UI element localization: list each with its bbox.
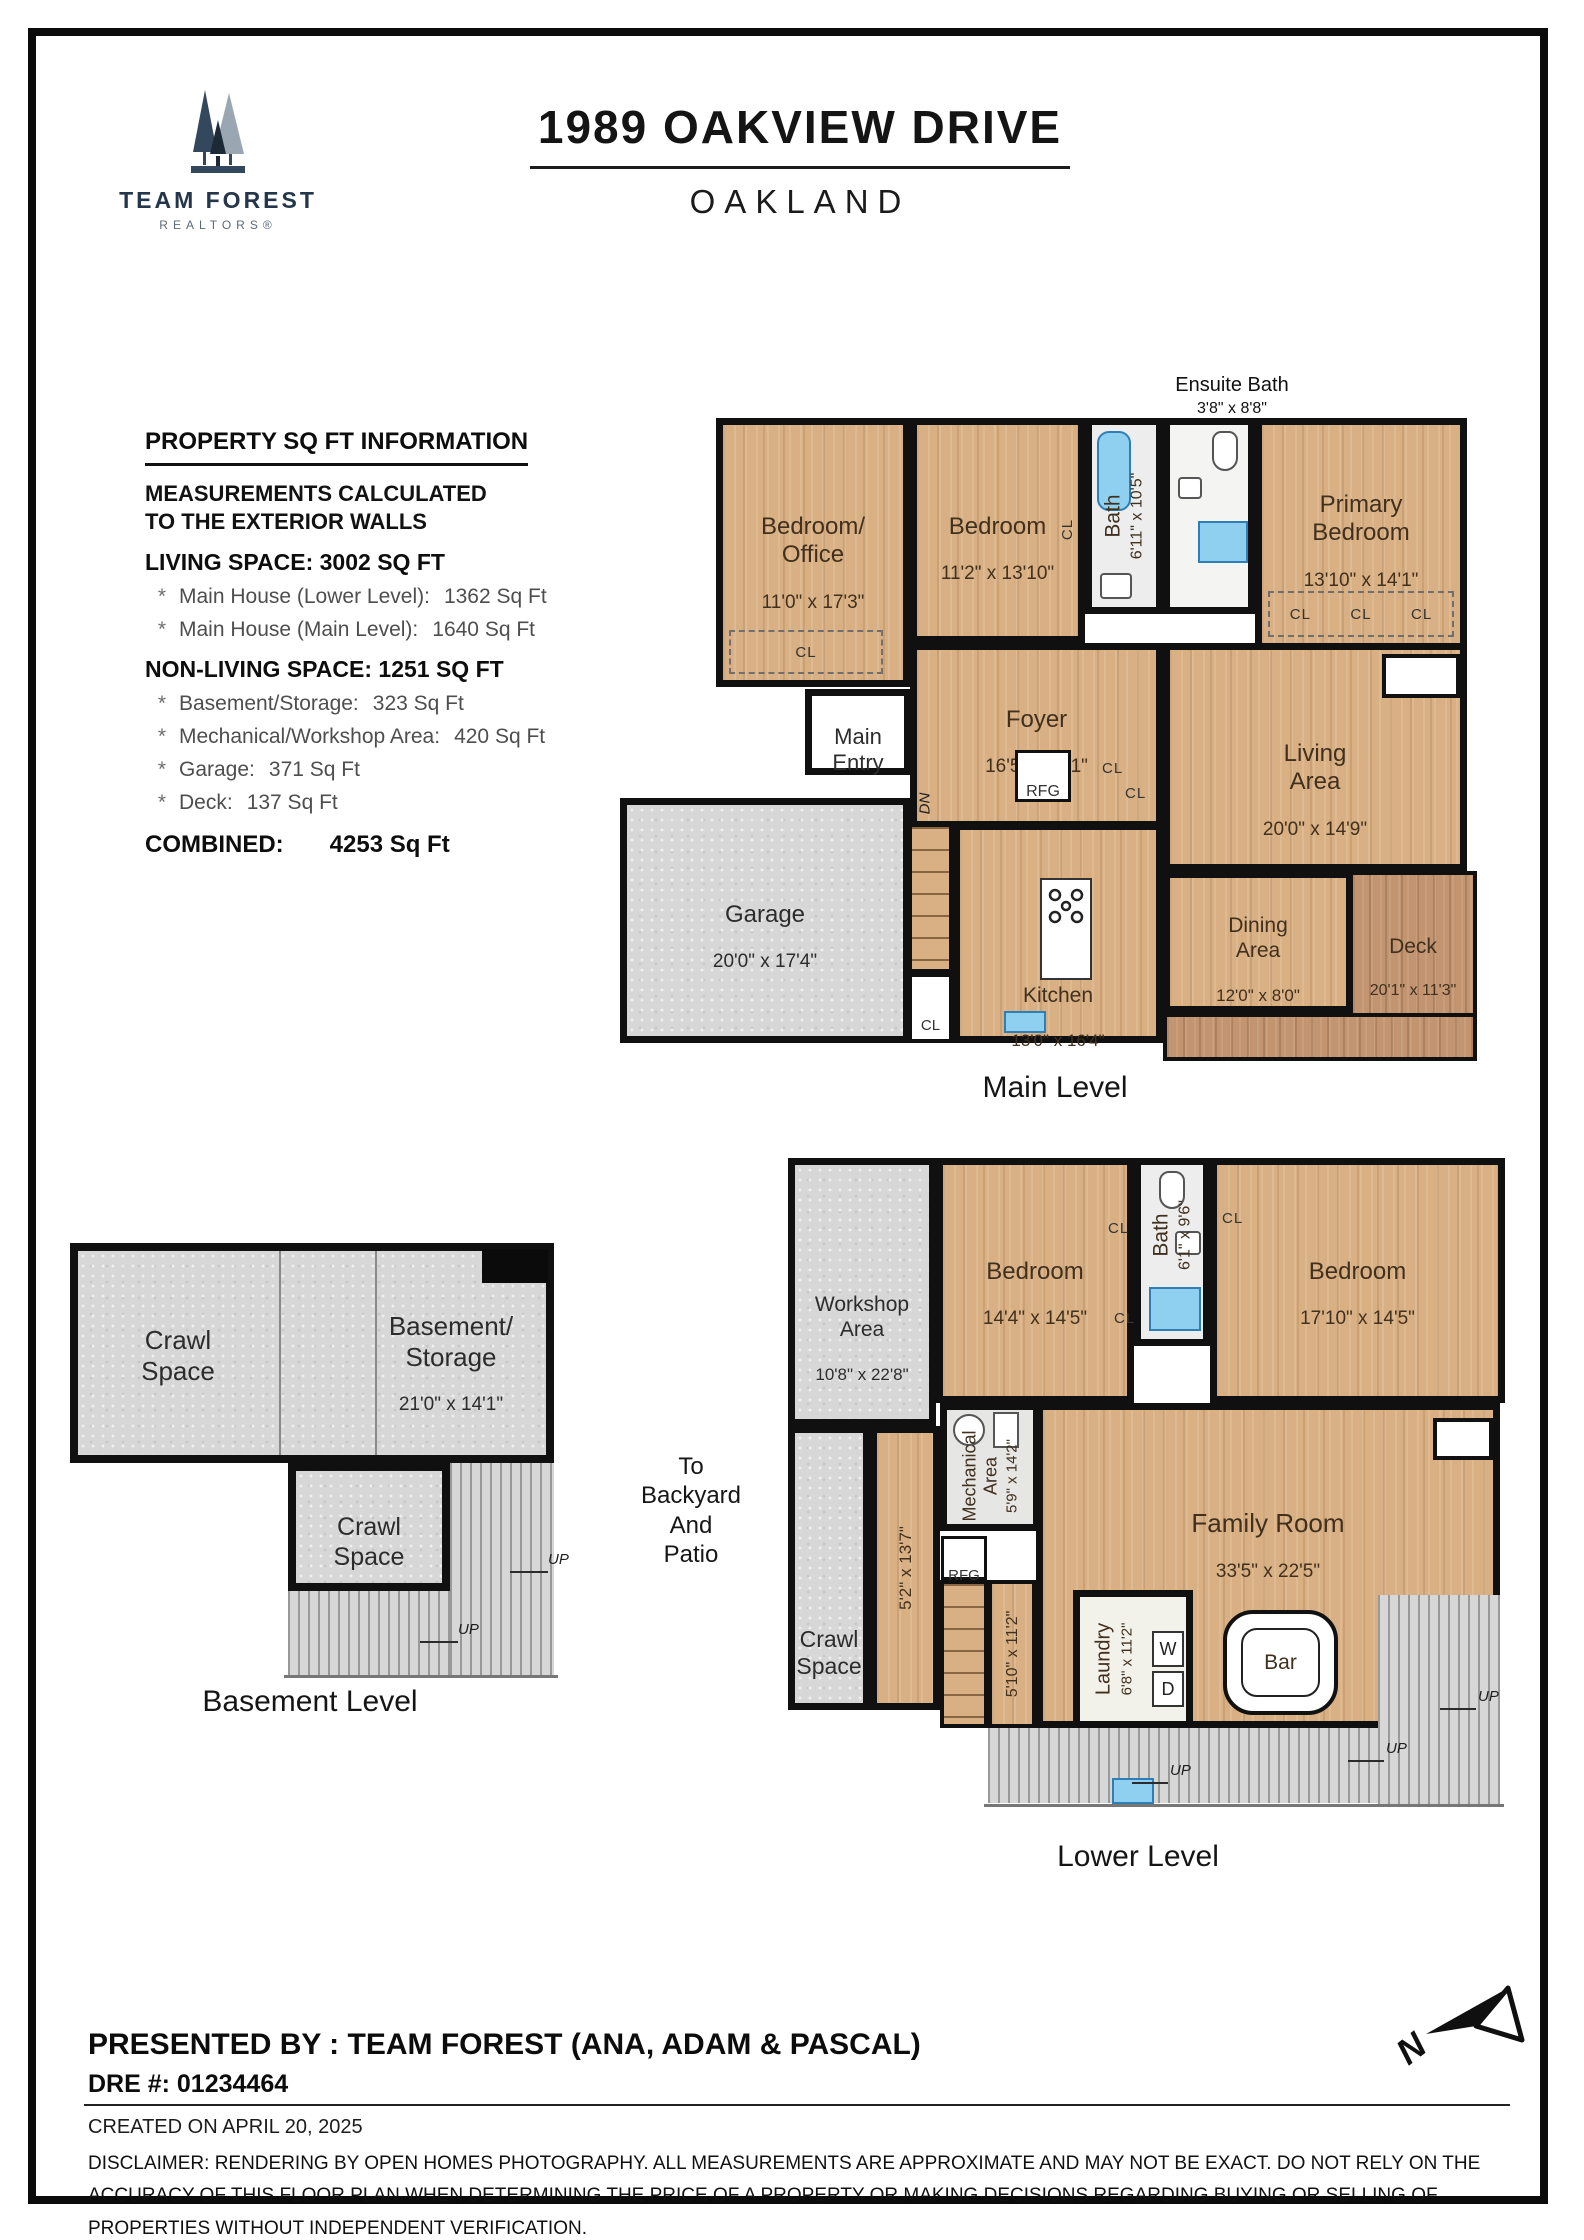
item-value: 371 Sq Ft [269,758,360,782]
stairs-up [940,1580,988,1728]
room-dims: 11'2" x 13'10" [917,563,1078,585]
closet-label: CL [1411,606,1432,623]
footer-divider [84,2104,1510,2106]
closet-label: CL [1125,785,1146,802]
room-label: Living Area 20'0" x 14'9" [1170,722,1460,859]
room-name: Bath [1150,1200,1175,1270]
room-dims: 14'4" x 14'5" [943,1308,1127,1330]
closet-label: CL [1222,1210,1243,1227]
appliance-label: RFG [1018,765,1068,819]
fireplace-icon [1382,654,1460,698]
dryer-label: D [1162,1679,1175,1700]
stair-dims: 5'10" x 11'2" [1004,1611,1022,1698]
room-name: Kitchen [960,984,1156,1009]
room-name: Workshop Area [795,1293,929,1343]
room-name: Mechanical Area [959,1431,1001,1522]
washer-label: W [1160,1639,1177,1660]
up-tick [510,1571,548,1573]
closet-label: CL [1290,606,1311,623]
closet-label: CL [1350,606,1371,623]
room-mechanical: Mechanical Area 5'9" x 14'2" [940,1403,1040,1531]
room-label: Kitchen 13'0" x 16'4" [960,966,1156,1069]
up-label: UP [1386,1740,1407,1757]
room-primary-bedroom: Primary Bedroom 13'10" x 14'1" CL CL CL [1255,418,1467,650]
room-label: Mechanical Area 5'9" x 14'2" [959,1431,1020,1522]
room-dims: 21'0" x 14'1" [366,1394,536,1416]
backyard-note: To Backyard And Patio [616,1452,766,1569]
item-value: 1640 Sq Ft [432,618,535,642]
ensuite-bath-annotation: Ensuite Bath 3'8" x 8'8" [1166,374,1298,418]
info-heading: PROPERTY SQ FT INFORMATION [145,428,528,466]
room-name: Ensuite Bath [1166,374,1298,397]
pine-trees-icon [183,88,253,176]
combined-value: 4253 Sq Ft [330,831,450,859]
room-laundry: Laundry 6'8" x 11'2" W D [1073,1590,1193,1728]
north-arrow-icon: N [1390,1982,1540,2087]
room-dims: 10'8" x 22'8" [795,1365,929,1385]
room-dims: 6'8" x 11'2" [1118,1623,1135,1696]
room-dims: 20'0" x 17'4" [627,951,903,973]
fireplace-icon [1433,1418,1493,1460]
svg-text:N: N [1390,2023,1435,2072]
info-note: MEASUREMENTS CALCULATED TO THE EXTERIOR … [145,480,645,535]
room-name: Main Entry [812,724,904,776]
main-level-caption: Main Level [605,1071,1505,1105]
bullet: * [145,791,179,815]
dre-number: DRE #: 01234464 [88,2070,288,2099]
list-item: * Garage: 371 Sq Ft [145,758,645,782]
living-space-heading: LIVING SPACE: 3002 SQ FT [145,549,645,576]
room-dims: 17'10" x 14'5" [1217,1308,1498,1330]
room-label: Dining Area 12'0" x 8'0" [1170,896,1346,1024]
corridor-label: 5'2" x 13'7" [894,1526,916,1610]
toilet-icon [1212,431,1238,471]
kitchen-island [1040,878,1092,980]
item-value: 323 Sq Ft [373,692,464,716]
item-label: Basement/Storage: [179,692,359,716]
room-bedroom-b: Bedroom 17'10" x 14'5" [1210,1158,1505,1403]
closet: CL [729,630,883,674]
stove-icon [1044,884,1088,928]
partition-line [279,1251,281,1455]
combined-label: COMBINED: [145,831,284,859]
up-label: UP [458,1621,479,1638]
item-label: Garage: [179,758,255,782]
page-subtitle: OAKLAND [420,183,1180,221]
room-name: Basement/ Storage [366,1311,536,1372]
deck-upper: Deck 20'1" x 11'3" [1349,871,1477,1017]
room-label: Bath 6'1" x 9'6" [1150,1200,1195,1270]
room-living-area: Living Area 20'0" x 14'9" [1163,643,1467,871]
room-name: Crawl Space [88,1325,268,1386]
washer-icon: W [1152,1631,1184,1667]
room-label: Workshop Area 10'8" x 22'8" [795,1275,929,1403]
corridor: 5'2" x 13'7" [870,1426,940,1710]
main-entry-porch: Main Entry [805,689,911,775]
bar-label: Bar [1264,1651,1297,1675]
bullet: * [145,618,179,642]
bullet: * [145,758,179,782]
stair-landing: 5'10" x 11'2" [988,1580,1036,1728]
room-name: Bedroom [1217,1258,1498,1286]
stair-label: 5'10" x 11'2" [1002,1611,1022,1698]
up-tick [420,1641,458,1643]
room-bath-lower: Bath 6'1" x 9'6" [1134,1158,1210,1346]
room-label: Bath 6'11" x 10'5" [1102,473,1147,560]
room-dims: 20'1" x 11'3" [1353,982,1473,1000]
bullet: * [145,692,179,716]
item-label: Mechanical/Workshop Area: [179,725,440,749]
closet-label: CL [1059,519,1076,540]
closet-label-wrap: CL [912,999,949,1035]
room-name: Crawl Space [795,1626,863,1680]
refrigerator-closet: RFG [1015,750,1071,802]
up-label: UP [1170,1762,1191,1779]
exterior-stairs [450,1463,554,1675]
room-name: Foyer [917,706,1156,734]
rfg-label: RFG [1018,783,1068,801]
room-bedroom-a: Bedroom 14'4" x 14'5" [936,1158,1134,1403]
nonliving-space-heading: NON-LIVING SPACE: 1251 SQ FT [145,656,645,683]
list-item: * Main House (Lower Level): 1362 Sq Ft [145,585,645,609]
closet-label: CL [921,1017,940,1034]
room-label: Bedroom 17'10" x 14'5" [1217,1240,1498,1348]
room-name: Laundry [1093,1623,1117,1696]
disclaimer-text: DISCLAIMER: RENDERING BY OPEN HOMES PHOT… [88,2148,1514,2240]
sink-icon [1178,477,1202,499]
room-label: Family Room 33'5" x 22'5" [1043,1490,1493,1601]
basement-crawl-box: Crawl Space [288,1463,450,1591]
room-dining-area: Dining Area 12'0" x 8'0" [1163,871,1353,1013]
dryer-icon: D [1152,1671,1184,1707]
room-name: Deck [1353,935,1473,960]
room-ensuite-bath [1163,418,1255,614]
combined-total: COMBINED: 4253 Sq Ft [145,831,645,859]
room-label: Deck 20'1" x 11'3" [1353,917,1473,1018]
presented-by: PRESENTED BY : TEAM FOREST (ANA, ADAM & … [88,2028,921,2062]
list-item: * Deck: 137 Sq Ft [145,791,645,815]
sink-icon [1100,573,1132,599]
steps-baseline [984,1804,1504,1807]
room-dims: 11'0" x 17'3" [723,592,903,614]
wall-notch [482,1249,548,1283]
room-dims: 6'11" x 10'5" [1128,473,1146,560]
room-name: Bedroom [917,513,1078,541]
bullet: * [145,585,179,609]
page-title: 1989 OAKVIEW DRIVE [420,100,1180,154]
room-dims: 33'5" x 22'5" [1043,1561,1493,1583]
exterior-steps [288,1591,450,1675]
room-name: Living Area [1170,740,1460,797]
room-label: Laundry 6'8" x 11'2" [1093,1623,1136,1696]
list-item: * Main House (Main Level): 1640 Sq Ft [145,618,645,642]
room-name: Bedroom/ Office [723,513,903,570]
closet-label: CL [1108,1220,1129,1237]
under-stair-closet: CL [908,973,953,1043]
closet-row: CL CL CL [1268,591,1454,637]
room-label: Bedroom 11'2" x 13'10" [917,495,1078,603]
room-label: Garage 20'0" x 17'4" [627,883,903,991]
item-value: 1362 Sq Ft [444,585,547,609]
room-dims: 5'9" x 14'2" [1004,1431,1021,1522]
closet-label: CL [1102,760,1123,777]
item-label: Deck: [179,791,233,815]
shower-icon [1149,1287,1201,1331]
up-label: UP [1478,1688,1499,1705]
steps-baseline [284,1675,558,1678]
room-label: Crawl Space [296,1495,442,1590]
basement-caption: Basement Level [110,1685,510,1719]
created-date: CREATED ON APRIL 20, 2025 [88,2116,363,2139]
room-dims: 20'0" x 14'9" [1170,819,1460,841]
room-label: Crawl Space [795,1608,863,1698]
bullet: * [145,725,179,749]
brand-logo: TEAM FOREST REALTORS® [118,88,318,232]
room-label: Crawl Space [88,1307,268,1404]
room-name: Primary Bedroom [1262,491,1460,548]
corridor-dims: 5'2" x 13'7" [896,1526,916,1610]
closet-label: CL [1114,1310,1135,1327]
basement-plan: Crawl Space Basement/ Storage 21'0" x 14… [70,1243,650,1733]
item-value: 137 Sq Ft [247,791,338,815]
refrigerator-closet: RFG [941,1536,987,1580]
room-dims: 12'0" x 8'0" [1170,986,1346,1006]
up-tick [1440,1708,1476,1710]
room-workshop: Workshop Area 10'8" x 22'8" [788,1158,936,1426]
floorplan-flyer: TEAM FOREST REALTORS® 1989 OAKVIEW DRIVE… [0,0,1584,2240]
room-name: Bedroom [943,1258,1127,1286]
closet-label: CL [795,644,816,661]
main-level-plan: Bedroom/ Office 11'0" x 17'3" CL Bedroom… [605,413,1505,1113]
lower-level-caption: Lower Level [898,1840,1378,1874]
room-label: Bedroom/ Office 11'0" x 17'3" [723,495,903,632]
kitchen-sink-icon [1004,1011,1046,1033]
room-label: Main Entry [812,706,904,794]
bar-counter: Bar [1223,1610,1338,1715]
room-label: Basement/ Storage 21'0" x 14'1" [366,1293,536,1434]
room-crawl-lower: Crawl Space [788,1426,870,1710]
room-dims: 6'1" x 9'6" [1176,1200,1194,1270]
up-tick [1348,1760,1384,1762]
lower-level-plan: Workshop Area 10'8" x 22'8" Bedroom 14'4… [778,1140,1548,1910]
room-garage: Garage 20'0" x 17'4" [620,798,910,1043]
stairs-down [908,823,953,973]
room-name: Family Room [1043,1508,1493,1539]
item-label: Main House (Lower Level): [179,585,430,609]
brand-subtitle: REALTORS® [118,218,318,232]
up-label: UP [548,1551,569,1568]
shower-icon [1198,521,1248,563]
room-dims: 13'10" x 14'1" [1262,570,1460,592]
room-name: Crawl Space [296,1513,442,1572]
room-label: Bedroom 14'4" x 14'5" [943,1240,1127,1348]
header: 1989 OAKVIEW DRIVE OAKLAND [420,100,1180,221]
up-tick [1132,1782,1168,1784]
stairs-dn-label: DN [916,793,933,815]
property-info-panel: PROPERTY SQ FT INFORMATION MEASUREMENTS … [145,428,645,859]
room-kitchen: Kitchen 13'0" x 16'4" [953,823,1163,1043]
list-item: * Basement/Storage: 323 Sq Ft [145,692,645,716]
room-name: Garage [627,901,903,929]
deck-lower-strip [1163,1013,1477,1061]
list-item: * Mechanical/Workshop Area: 420 Sq Ft [145,725,645,749]
item-value: 420 Sq Ft [454,725,545,749]
room-dims: 13'0" x 16'4" [960,1031,1156,1051]
bar-label-wrap: Bar [1241,1628,1320,1697]
room-name: Dining Area [1170,914,1346,964]
room-label: Primary Bedroom 13'10" x 14'1" [1262,473,1460,610]
item-label: Main House (Main Level): [179,618,418,642]
room-bath: Bath 6'11" x 10'5" [1085,418,1163,614]
title-underline [530,166,1070,169]
basement-main-box: Crawl Space Basement/ Storage 21'0" x 14… [70,1243,554,1463]
room-bedroom-office: Bedroom/ Office 11'0" x 17'3" CL [716,418,910,687]
brand-name: TEAM FOREST [118,187,318,214]
room-name: Bath [1102,473,1127,560]
